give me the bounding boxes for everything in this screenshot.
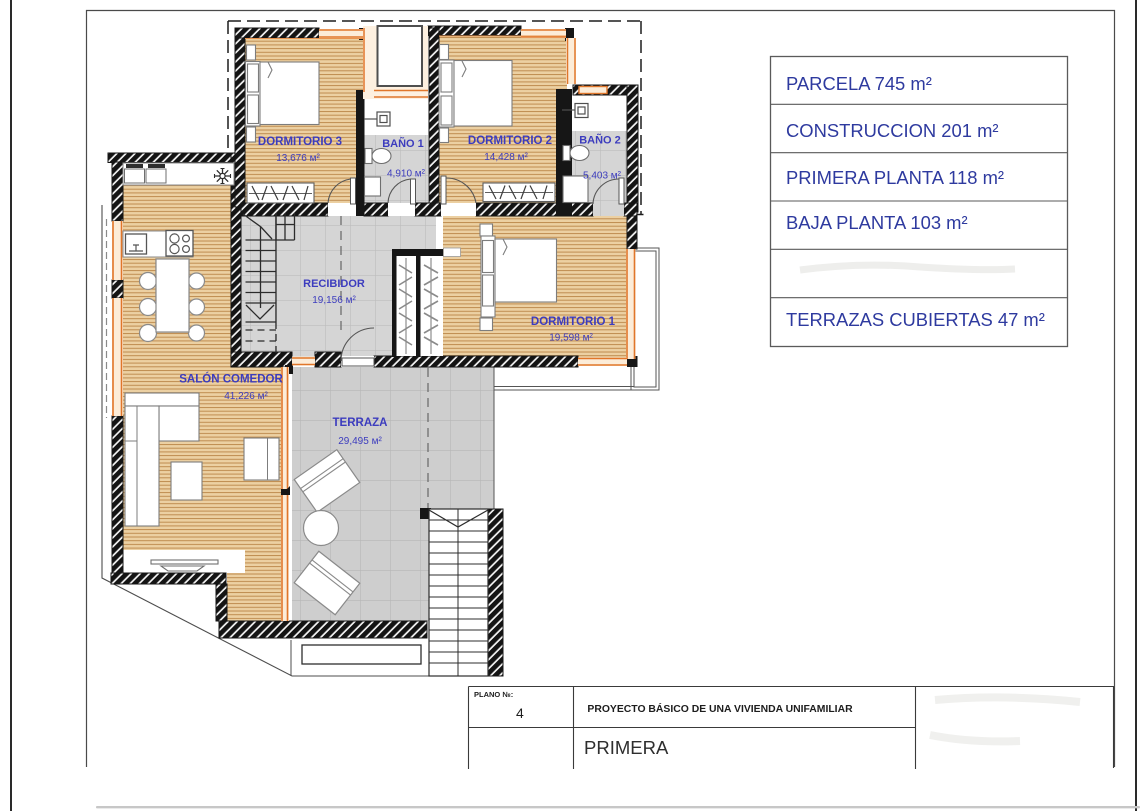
svg-text:BAÑO 2: BAÑO 2 [579, 134, 621, 147]
svg-text:DORMITORIO 2: DORMITORIO 2 [468, 135, 552, 147]
svg-text:19,598 м²: 19,598 м² [549, 333, 593, 344]
svg-text:19,156 м²: 19,156 м² [312, 295, 356, 306]
svg-text:41,226 м²: 41,226 м² [224, 391, 268, 402]
svg-text:TERRAZA: TERRAZA [333, 417, 388, 429]
svg-text:PRIMERA: PRIMERA [584, 737, 669, 758]
svg-text:PROYECTO BÁSICO DE UNA VIVIEND: PROYECTO BÁSICO DE UNA VIVIENDA UNIFAMIL… [587, 702, 853, 715]
svg-text:DORMITORIO 1: DORMITORIO 1 [531, 316, 616, 328]
svg-text:29,495 м²: 29,495 м² [338, 436, 382, 447]
svg-text:TERRAZAS CUBIERTAS 47 m²: TERRAZAS CUBIERTAS 47 m² [786, 309, 1045, 330]
svg-text:SALÓN COMEDOR: SALÓN COMEDOR [179, 373, 283, 386]
svg-text:4,910 м²: 4,910 м² [387, 169, 426, 180]
svg-text:13,676 м²: 13,676 м² [276, 153, 320, 164]
svg-text:PRIMERA PLANTA 118 m²: PRIMERA PLANTA 118 m² [786, 167, 1004, 188]
svg-text:4: 4 [516, 705, 524, 721]
svg-text:BAÑO 1: BAÑO 1 [382, 137, 424, 150]
svg-text:CONSTRUCCION 201 m²: CONSTRUCCION 201 m² [786, 120, 999, 141]
svg-text:BAJA PLANTA 103 m²: BAJA PLANTA 103 m² [786, 212, 968, 233]
svg-text:PARCELA 745 m²: PARCELA 745 m² [786, 73, 932, 94]
svg-text:5,403 м²: 5,403 м² [583, 171, 622, 182]
svg-text:14,428 м²: 14,428 м² [484, 152, 528, 163]
svg-text:DORMITORIO 3: DORMITORIO 3 [258, 136, 342, 148]
svg-text:RECIBIDOR: RECIBIDOR [303, 278, 365, 290]
svg-text:PLANO №:: PLANO №: [474, 690, 513, 699]
